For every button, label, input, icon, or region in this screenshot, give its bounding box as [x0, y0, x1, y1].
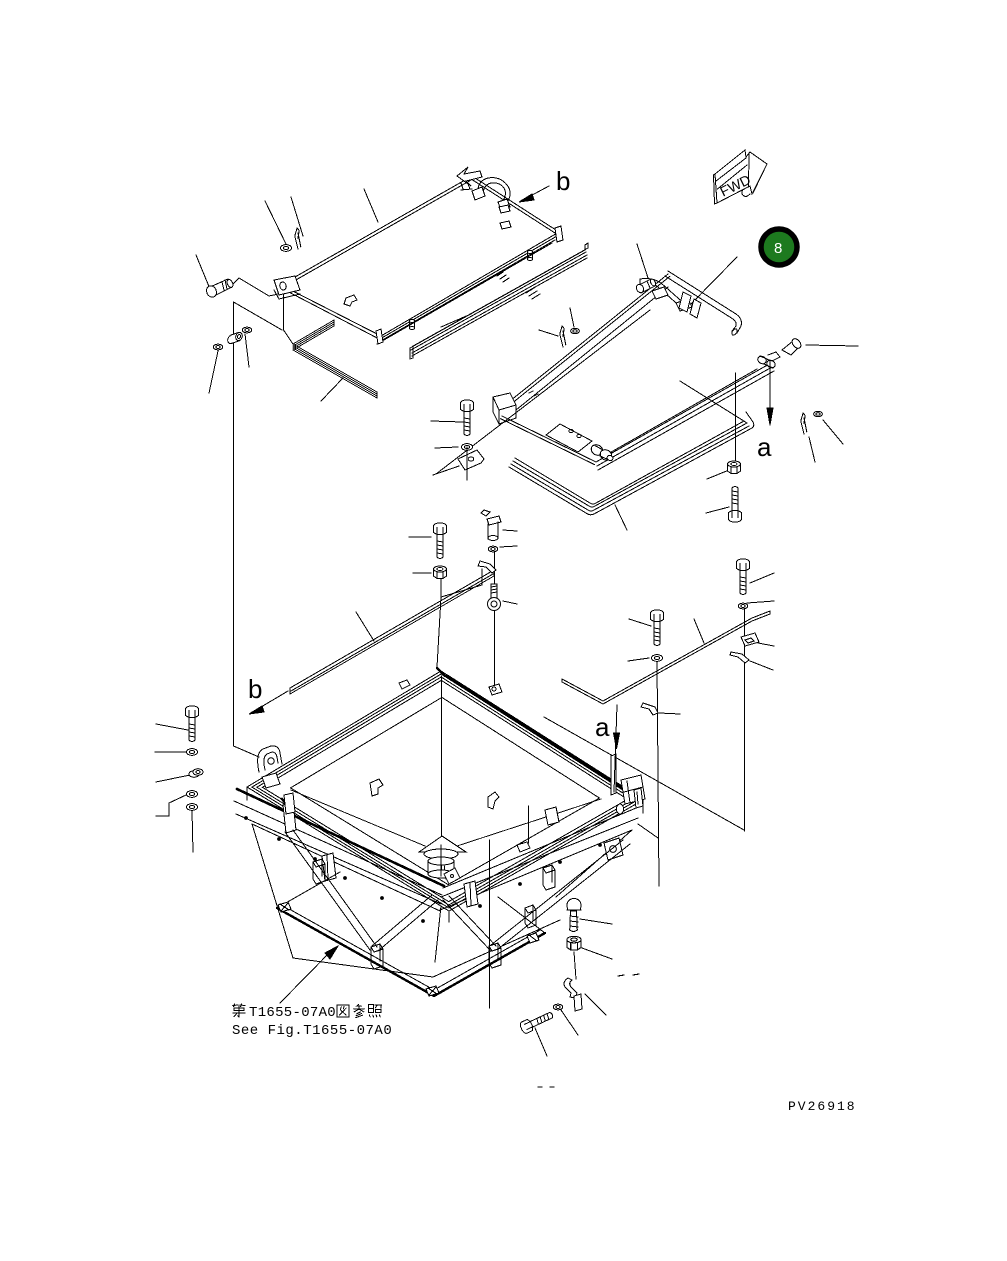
svg-text:PV26918: PV26918	[788, 1099, 857, 1114]
svg-text:a: a	[757, 432, 772, 462]
svg-text:See Fig.T1655-07A0: See Fig.T1655-07A0	[232, 1023, 392, 1039]
svg-text:T1655-07A0: T1655-07A0	[249, 1005, 336, 1021]
svg-text:b: b	[556, 166, 570, 196]
svg-text:b: b	[248, 674, 262, 704]
svg-text:8: 8	[774, 240, 782, 257]
svg-text:a: a	[595, 712, 610, 742]
